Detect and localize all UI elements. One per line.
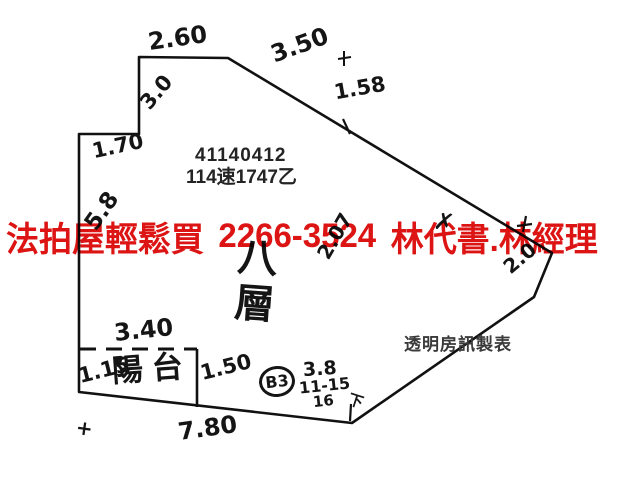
balcony-label: 陽台: [111, 351, 193, 388]
ad-banner-brand: 法拍屋輕鬆買: [6, 212, 204, 261]
ad-banner-phone: 2266-3524: [218, 217, 376, 256]
ad-banner: 法拍屋輕鬆買 2266-3524 林代書.林經理: [6, 214, 621, 258]
note-line3: 16: [312, 393, 334, 410]
top-arrow-tick: [338, 51, 351, 66]
case-number-text: 41140412: [195, 146, 287, 165]
plus-mark-bottom-left: +: [75, 417, 94, 439]
maker-watermark-text: 透明房訊製表: [404, 336, 512, 353]
ad-banner-contact: 林代書.林經理: [391, 212, 598, 261]
floorplan-scan-page: 41140412 114速1747乙 透明房訊製表 2.60 3.50 1.58…: [0, 0, 640, 480]
dim-balcony-top: 3.40: [113, 315, 174, 345]
registry-number-text: 114速1747乙: [186, 168, 297, 187]
